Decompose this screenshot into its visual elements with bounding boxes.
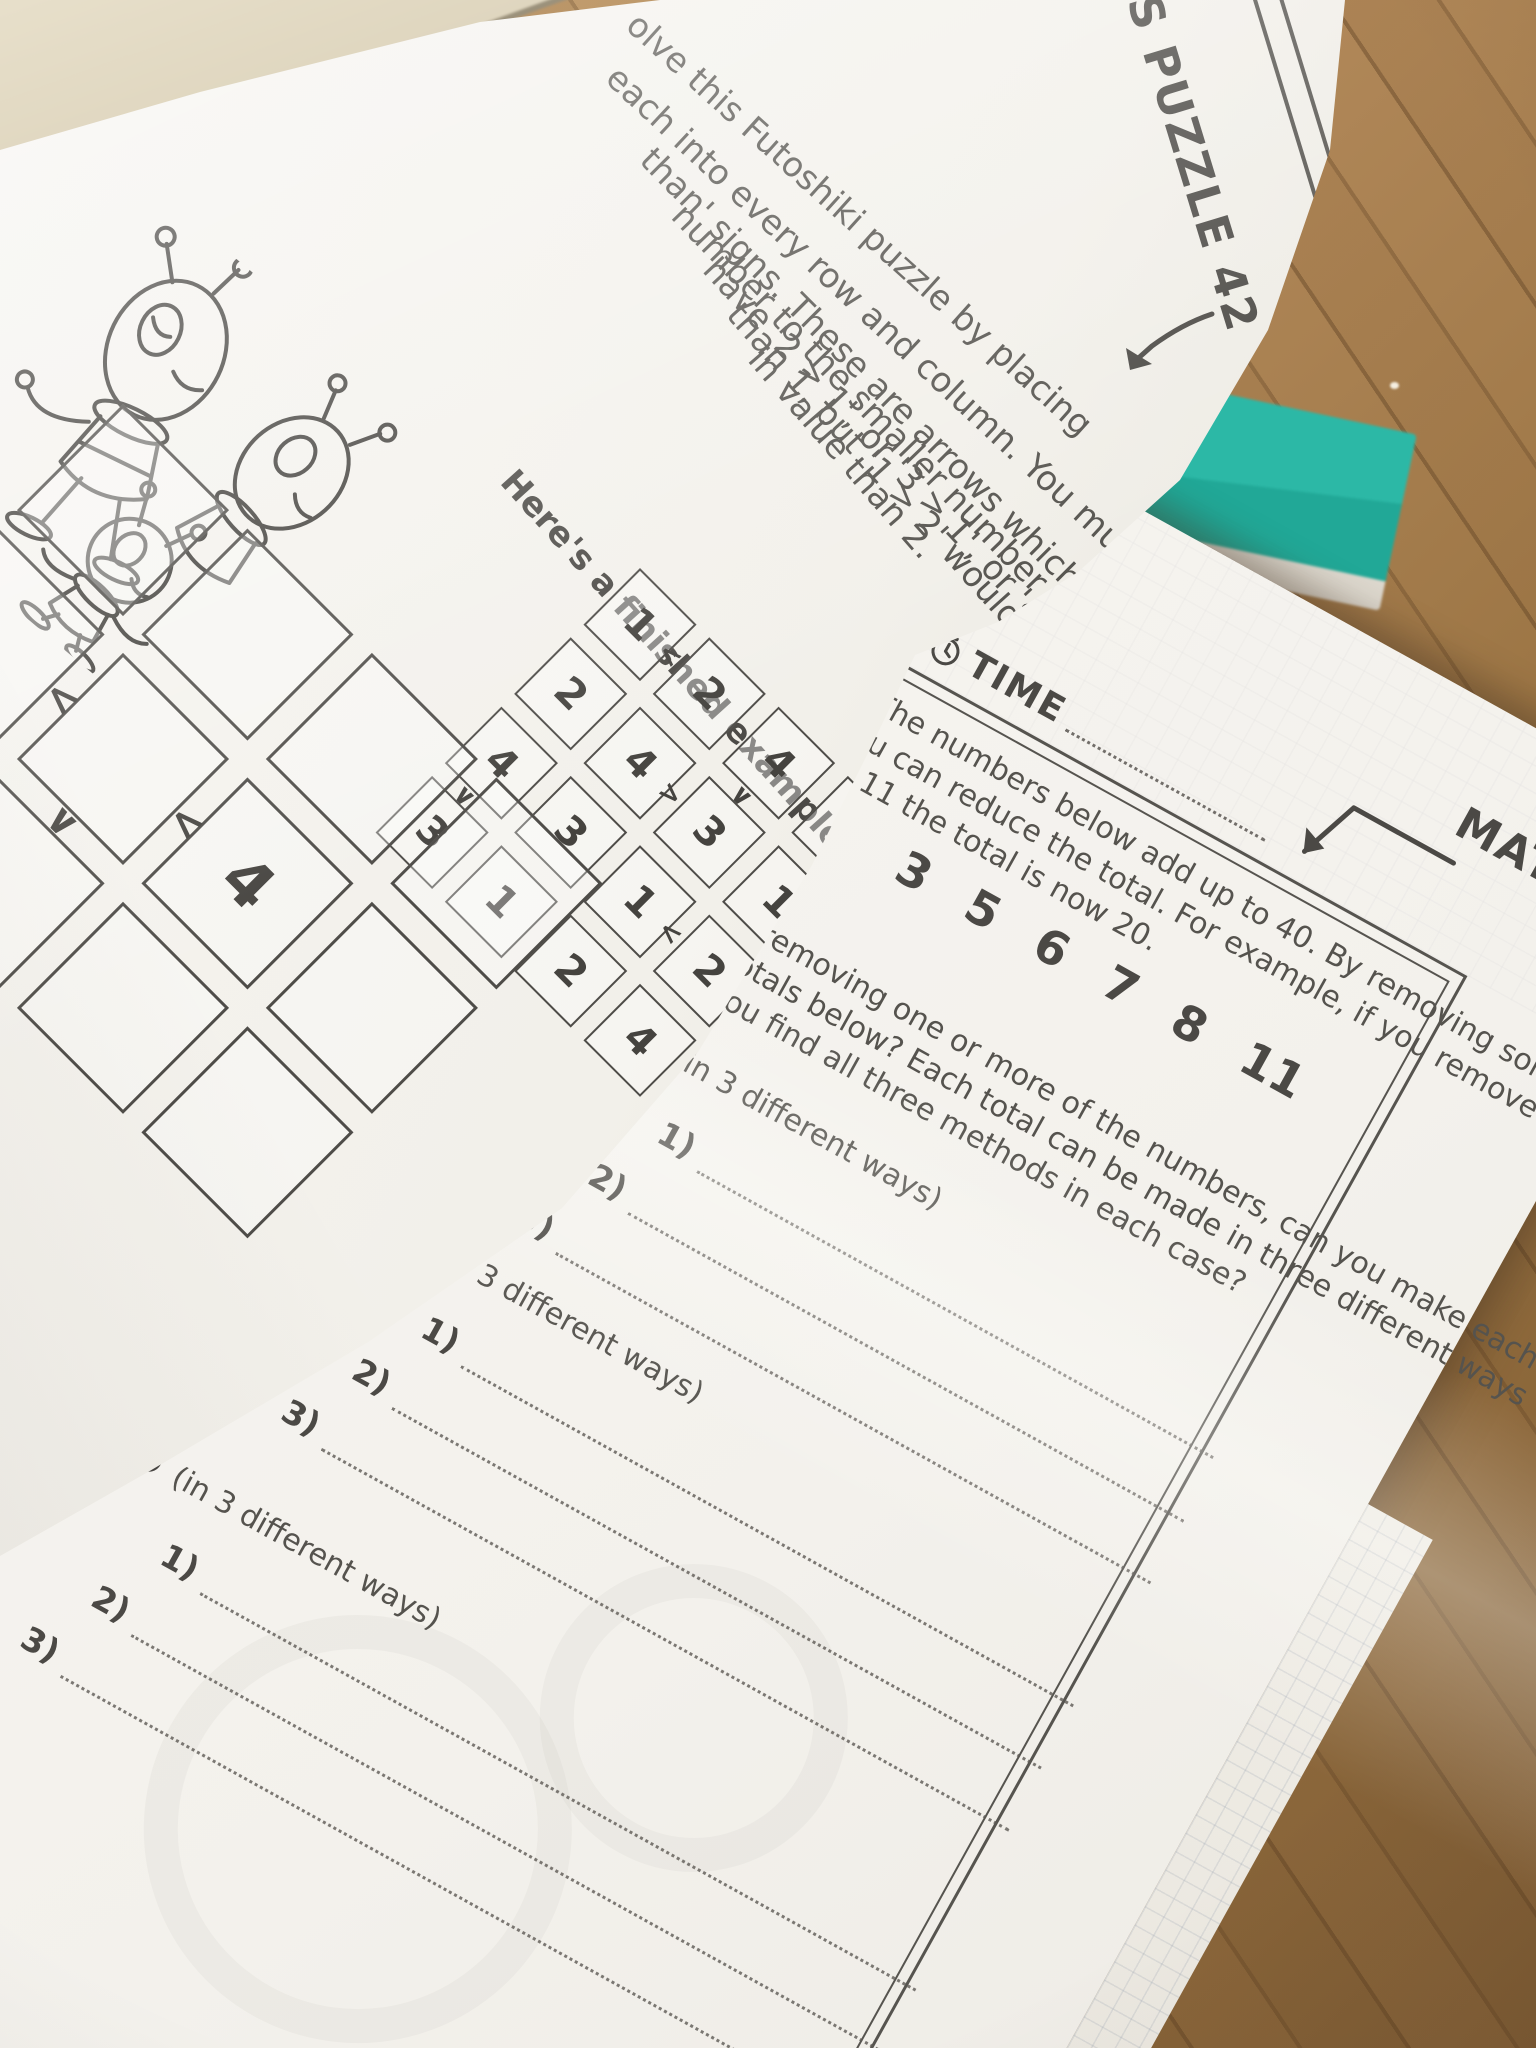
photo-open-puzzle-book: TIME MATH The numbers below add up to 40… xyxy=(0,0,1536,2048)
dust-speck xyxy=(1390,382,1399,389)
